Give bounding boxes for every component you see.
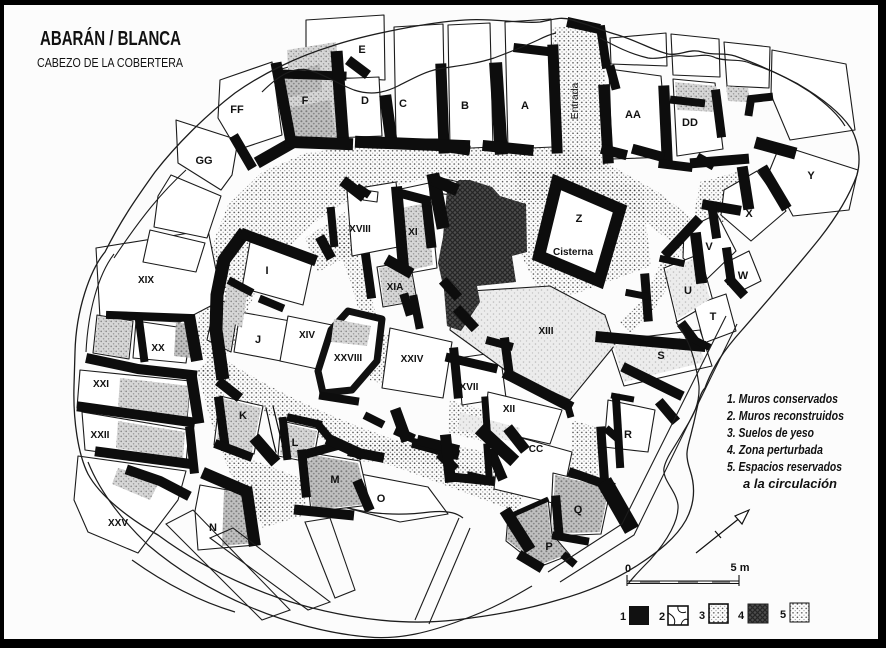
svg-text:2. Muros reconstruidos: 2. Muros reconstruidos — [726, 409, 844, 423]
svg-text:XVIII: XVIII — [349, 224, 371, 235]
svg-text:U: U — [684, 285, 692, 297]
svg-text:B: B — [461, 100, 469, 112]
svg-text:E: E — [358, 44, 365, 56]
svg-text:4. Zona perturbada: 4. Zona perturbada — [726, 443, 823, 457]
svg-text:M: M — [330, 474, 339, 486]
svg-text:A: A — [521, 100, 529, 112]
svg-text:V: V — [705, 241, 713, 253]
svg-text:1: 1 — [620, 611, 626, 623]
svg-text:Q: Q — [574, 504, 583, 516]
svg-text:W: W — [738, 270, 749, 282]
svg-text:GG: GG — [195, 155, 212, 167]
svg-text:K: K — [239, 410, 247, 422]
svg-text:XVII: XVII — [460, 382, 479, 393]
svg-text:XIII: XIII — [538, 326, 553, 337]
svg-text:XXI: XXI — [93, 379, 109, 390]
svg-text:3. Suelos de yeso: 3. Suelos de yeso — [727, 426, 814, 440]
svg-text:F: F — [302, 95, 309, 107]
svg-text:XXV: XXV — [108, 518, 128, 529]
svg-text:XXIV: XXIV — [401, 354, 424, 365]
svg-text:Entrada: Entrada — [569, 82, 581, 119]
svg-text:CC: CC — [529, 444, 543, 455]
svg-text:XIA: XIA — [387, 282, 404, 293]
svg-text:L: L — [292, 437, 299, 449]
svg-text:CABEZO DE LA COBERTERA: CABEZO DE LA COBERTERA — [37, 55, 183, 70]
svg-text:AA: AA — [625, 109, 641, 121]
svg-text:XIV: XIV — [299, 330, 315, 341]
svg-text:a la circulación: a la circulación — [743, 477, 837, 491]
svg-text:5: 5 — [780, 609, 786, 621]
svg-text:Y: Y — [807, 170, 815, 182]
svg-text:O: O — [377, 493, 386, 505]
svg-text:R: R — [624, 429, 632, 441]
svg-text:Z: Z — [576, 213, 583, 225]
svg-text:5 m: 5 m — [731, 562, 750, 574]
svg-text:XXII: XXII — [91, 430, 110, 441]
svg-text:FF: FF — [230, 104, 244, 116]
svg-text:P: P — [545, 541, 552, 553]
svg-text:1. Muros conservados: 1. Muros conservados — [727, 392, 838, 406]
svg-text:J: J — [255, 334, 261, 346]
svg-text:N: N — [209, 522, 217, 534]
svg-text:2: 2 — [659, 611, 665, 623]
svg-text:5. Espacios reservados: 5. Espacios reservados — [727, 460, 842, 474]
svg-text:XXVIII: XXVIII — [334, 353, 363, 364]
svg-text:XI: XI — [408, 227, 418, 238]
svg-text:C: C — [399, 98, 407, 110]
svg-text:T: T — [710, 311, 717, 323]
svg-text:D: D — [361, 95, 369, 107]
svg-text:XX: XX — [151, 343, 165, 354]
svg-text:S: S — [657, 350, 664, 362]
svg-text:3: 3 — [699, 610, 705, 622]
svg-text:DD: DD — [682, 117, 698, 129]
svg-text:Cisterna: Cisterna — [553, 247, 593, 258]
svg-text:4: 4 — [738, 610, 745, 622]
svg-text:X: X — [745, 208, 753, 220]
svg-text:I: I — [265, 265, 268, 277]
svg-text:0: 0 — [625, 563, 631, 575]
svg-text:XII: XII — [503, 404, 515, 415]
svg-text:ABARÁN / BLANCA: ABARÁN / BLANCA — [40, 27, 181, 50]
svg-text:XIX: XIX — [138, 275, 154, 286]
